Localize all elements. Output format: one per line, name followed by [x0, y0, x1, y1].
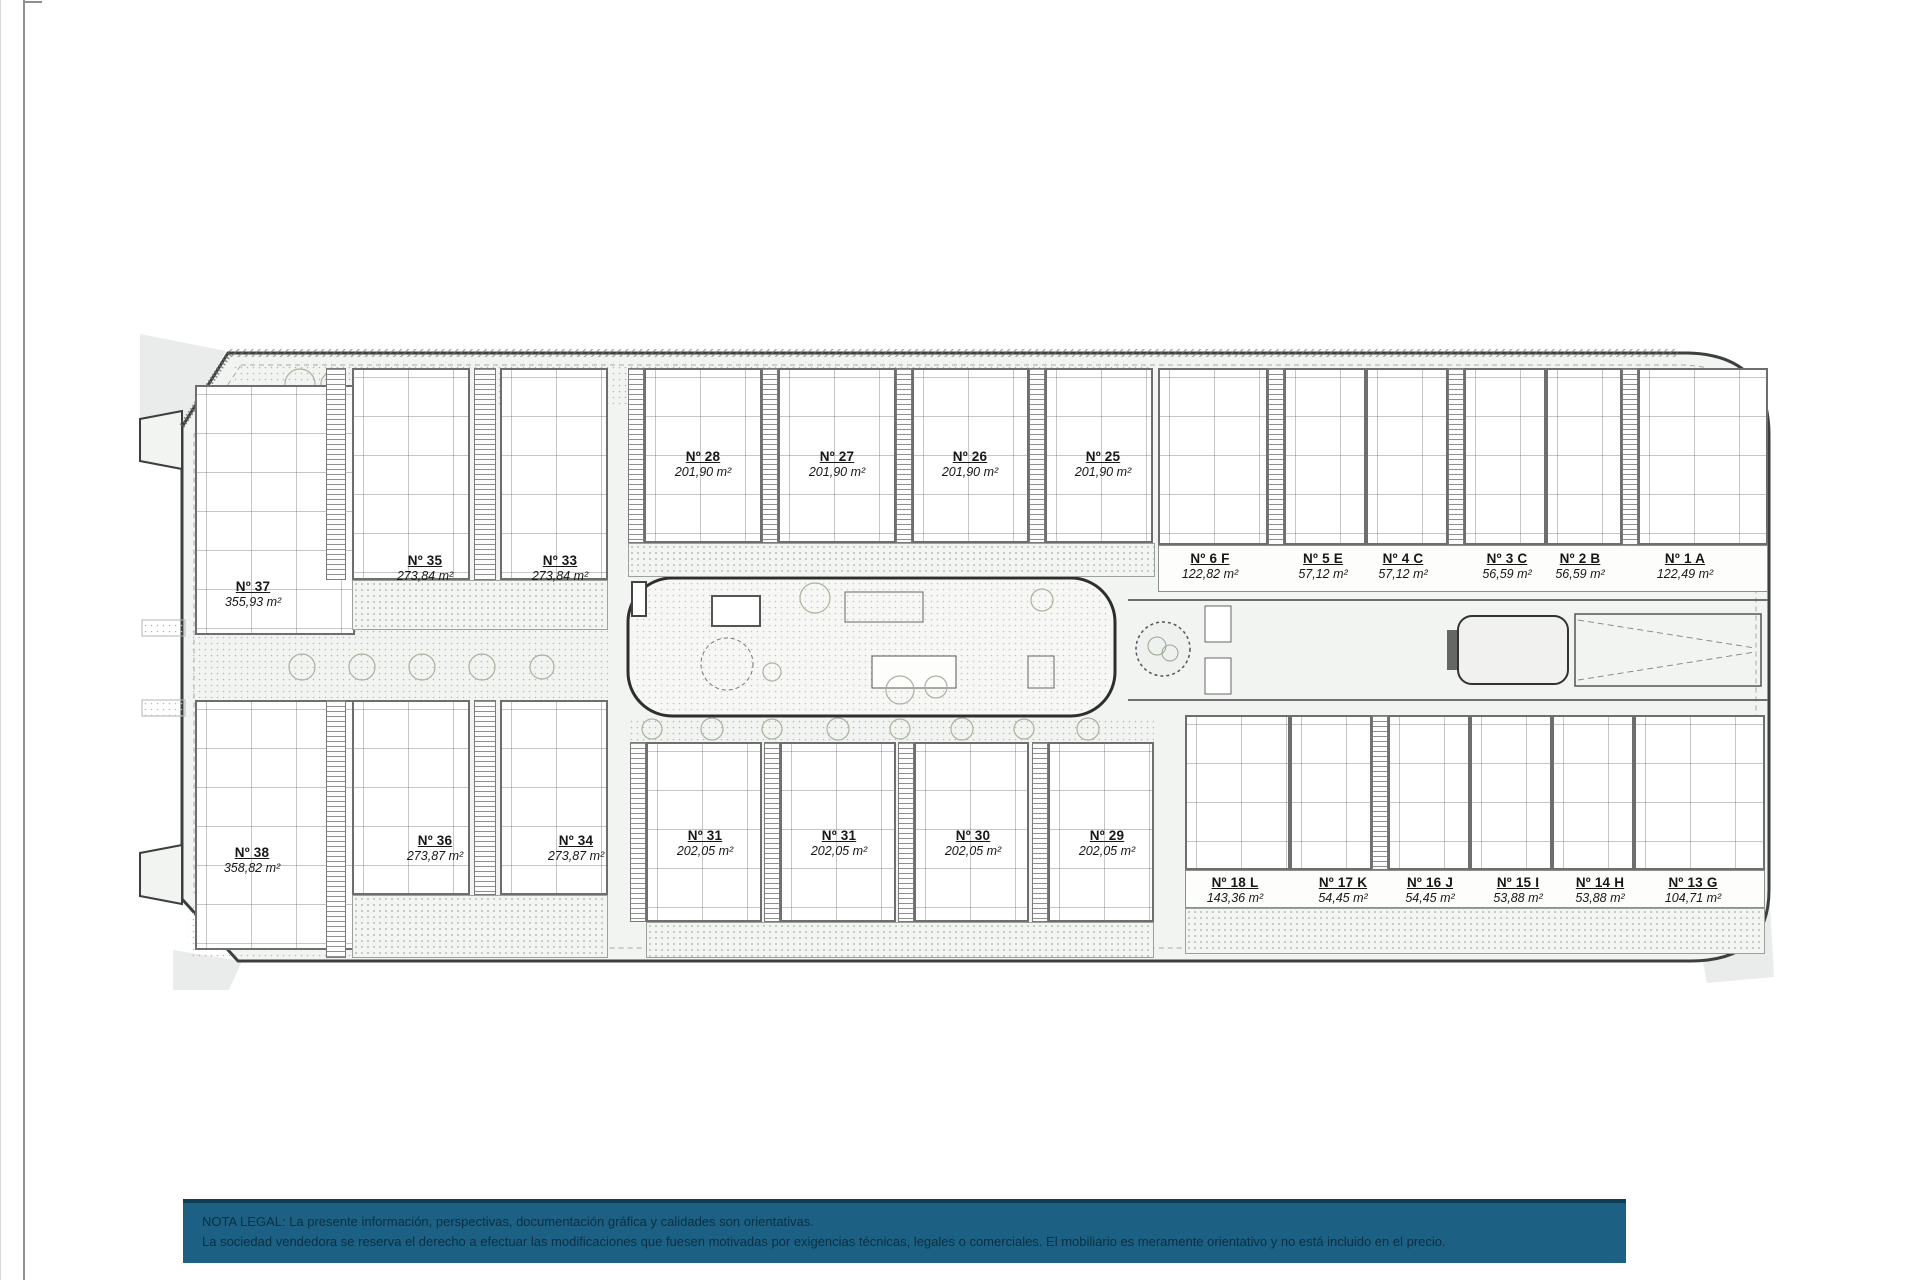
legal-note-banner: NOTA LEGAL: La presente información, per… — [183, 1199, 1626, 1263]
boundary-hatch — [228, 349, 1678, 357]
unit-block-16J — [1388, 715, 1470, 870]
unit-label-38: Nº 38358,82 m² — [192, 845, 312, 875]
site-boundary-notch — [140, 845, 182, 904]
entry-path — [142, 700, 185, 716]
unit-label-27: Nº 27201,90 m² — [777, 449, 897, 479]
unit-block-3C — [1464, 368, 1546, 545]
unit-label-30: Nº 30202,05 m² — [913, 828, 1033, 858]
stair-strip — [764, 742, 780, 922]
legal-note-line1: NOTA LEGAL: La presente información, per… — [202, 1212, 1612, 1232]
garden-band — [188, 630, 608, 698]
unit-label-2B: Nº 2 B56,59 m² — [1520, 551, 1640, 581]
unit-label-26: Nº 26201,90 m² — [910, 449, 1030, 479]
unit-label-6F: Nº 6 F122,82 m² — [1150, 551, 1270, 581]
unit-block-14H — [1552, 715, 1634, 870]
site-boundary-notch — [140, 411, 182, 469]
site-plan: Nº 37355,93 m² Nº 35273,84 m² Nº 33273,8… — [0, 0, 1920, 1280]
driveway-strip — [326, 368, 346, 580]
garden-strip — [646, 922, 1154, 958]
stair-strip — [630, 742, 646, 922]
stair-strip — [1622, 368, 1638, 545]
courtyard-paving — [632, 582, 1111, 712]
plan-page: Nº 37355,93 m² Nº 35273,84 m² Nº 33273,8… — [0, 0, 1920, 1280]
unit-label-33: Nº 33273,84 m² — [500, 553, 620, 583]
unit-label-1A: Nº 1 A122,49 m² — [1625, 551, 1745, 581]
stair-strip — [1448, 368, 1464, 545]
garden-band — [630, 718, 1154, 742]
unit-label-4C: Nº 4 C57,12 m² — [1343, 551, 1463, 581]
pergola — [712, 596, 760, 626]
unit-block-36 — [352, 700, 470, 895]
stair-strip — [898, 742, 914, 922]
unit-block-15I — [1470, 715, 1552, 870]
unit-label-35: Nº 35273,84 m² — [365, 553, 485, 583]
unit-block-2B — [1546, 368, 1622, 545]
stair-strip — [1268, 368, 1284, 545]
unit-label-29: Nº 29202,05 m² — [1047, 828, 1167, 858]
unit-block-4C — [1366, 368, 1448, 545]
unit-label-37: Nº 37355,93 m² — [193, 579, 313, 609]
unit-block-34 — [500, 700, 608, 895]
stair-strip — [762, 368, 778, 543]
unit-label-13G: Nº 13 G104,71 m² — [1633, 875, 1753, 905]
planter — [1205, 606, 1231, 642]
unit-block-18L — [1185, 715, 1290, 870]
unit-block-1A — [1638, 368, 1768, 545]
garden-strip — [352, 580, 608, 630]
unit-block-13G — [1634, 715, 1765, 870]
unit-block-33 — [500, 368, 608, 580]
unit-block-6F — [1158, 368, 1268, 545]
unit-block-17K — [1290, 715, 1372, 870]
terrace-band — [1185, 908, 1765, 954]
pool — [872, 656, 956, 688]
unit-label-28: Nº 28201,90 m² — [643, 449, 763, 479]
unit-block-35 — [352, 368, 470, 580]
site-plan-drawing — [0, 0, 1920, 1280]
unit-label-31b: Nº 31202,05 m² — [779, 828, 899, 858]
driveway-strip — [474, 700, 496, 895]
stair-strip — [1372, 715, 1388, 870]
unit-label-31a: Nº 31202,05 m² — [645, 828, 765, 858]
entry-path — [142, 620, 185, 636]
unit-block-5E — [1284, 368, 1366, 545]
stair-strip — [1032, 742, 1048, 922]
unit-label-25: Nº 25201,90 m² — [1043, 449, 1163, 479]
vehicle — [1458, 616, 1568, 684]
unit-label-34: Nº 34273,87 m² — [516, 833, 636, 863]
driveway-strip — [326, 700, 346, 958]
garden-strip — [352, 895, 608, 958]
legal-note-line2: La sociedad vendedora se reserva el dere… — [202, 1232, 1612, 1252]
driveway-strip — [474, 368, 496, 580]
stair-strip — [628, 368, 644, 543]
courtyard-kiosk — [632, 582, 646, 616]
garden-strip — [628, 543, 1155, 577]
planter — [1205, 658, 1231, 694]
unit-label-18L: Nº 18 L143,36 m² — [1175, 875, 1295, 905]
vehicle-front — [1447, 630, 1457, 670]
unit-label-36: Nº 36273,87 m² — [375, 833, 495, 863]
